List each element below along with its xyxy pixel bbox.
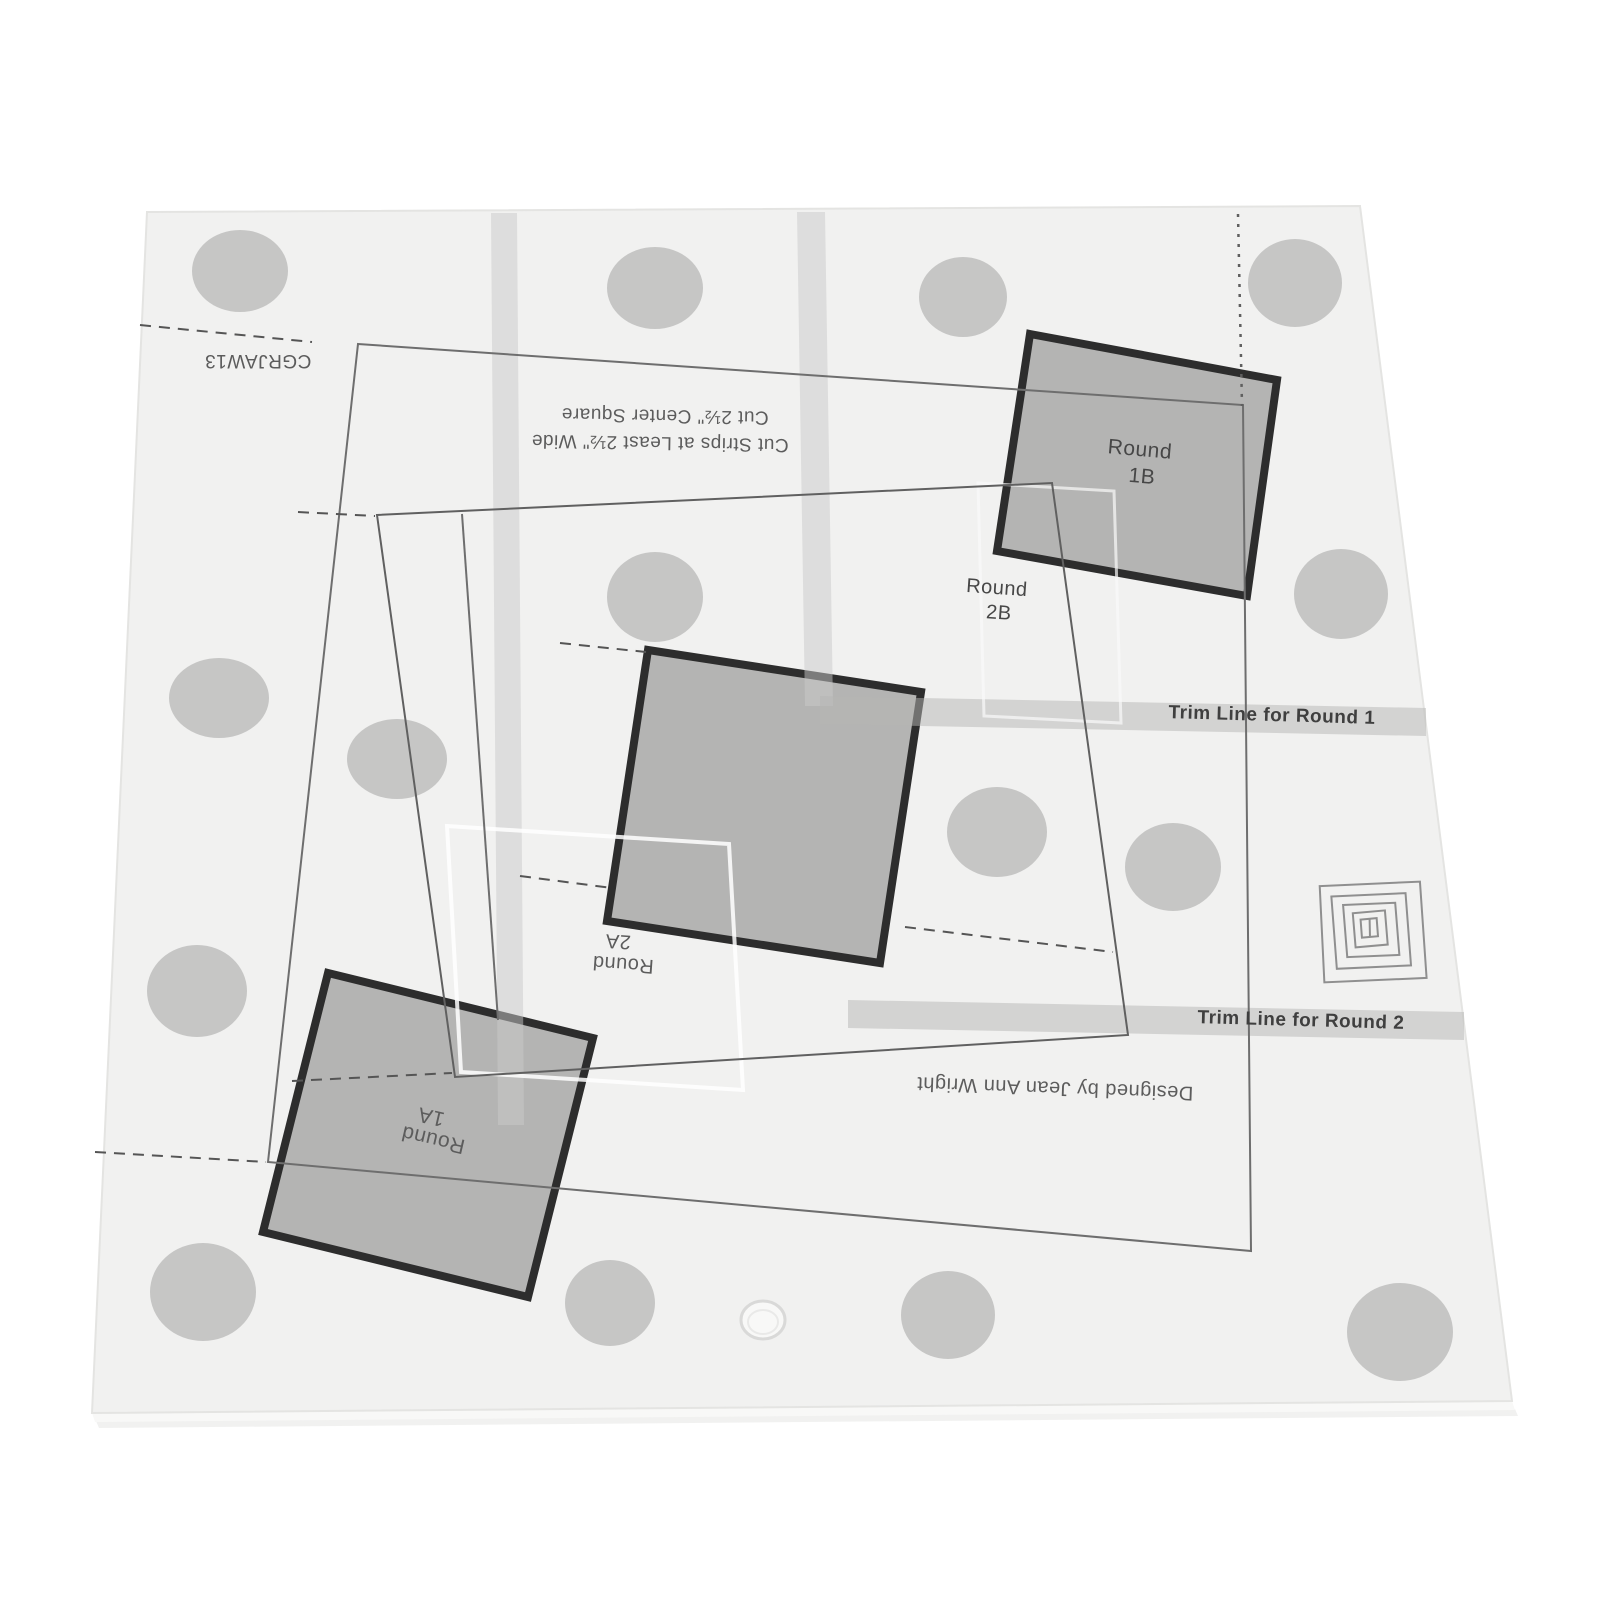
patch-round-2b-label-line1: Round (966, 575, 1029, 601)
patch-round-2a-label-line1: Round (592, 951, 655, 977)
patch-round-2a-label-line2: 2A (604, 929, 631, 953)
grip-dot (1294, 549, 1388, 639)
grip-dot (169, 658, 269, 738)
photo-canvas: CGRJAW13 Cut 2½" Center Square Cut Strip… (0, 0, 1601, 1601)
patch-round-2b-label-line2: 2B (985, 601, 1012, 625)
product-code-text: CGRJAW13 (205, 350, 312, 371)
instruction-line-2: Cut Strips at Least 2½" Wide (531, 430, 789, 455)
grip-dot (947, 787, 1047, 877)
grip-dot (607, 247, 703, 329)
grip-dot (607, 552, 703, 642)
grip-dot (1347, 1283, 1453, 1381)
grip-dot (150, 1243, 256, 1341)
grip-dot (192, 230, 288, 312)
grip-dot (347, 719, 447, 799)
grip-dot (901, 1271, 995, 1359)
instruction-line-1: Cut 2½" Center Square (561, 403, 769, 428)
grip-dot (147, 945, 247, 1037)
grip-dot (565, 1260, 655, 1346)
patch-center-square (607, 650, 921, 963)
patch-round-1b-label-line2: 1B (1128, 464, 1157, 489)
grip-dot (1248, 239, 1342, 327)
grip-dot (1125, 823, 1221, 911)
grip-dot (919, 257, 1007, 337)
quilt-template-product-photo: CGRJAW13 Cut 2½" Center Square Cut Strip… (0, 0, 1601, 1601)
hanging-hole (741, 1301, 785, 1339)
